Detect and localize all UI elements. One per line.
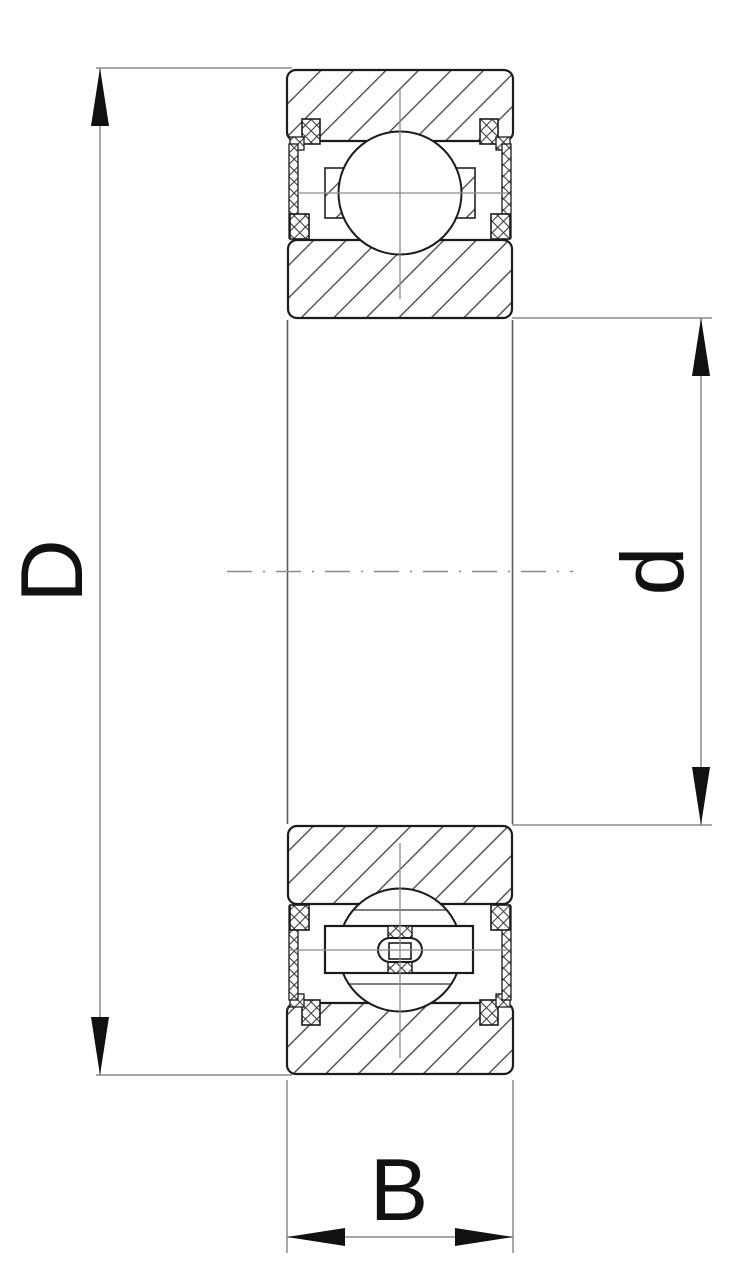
bore-diameter-label: d	[603, 547, 702, 596]
arrow-up-icon	[692, 318, 710, 376]
bearing-dimension-diagram: D d B	[0, 0, 743, 1280]
top-bearing-section	[287, 70, 513, 318]
width-label: B	[370, 1140, 429, 1239]
arrow-down-icon	[91, 1017, 109, 1075]
seal-right-top	[480, 119, 511, 239]
outer-diameter-label: D	[2, 539, 101, 603]
bottom-bearing-section	[287, 826, 513, 1074]
arrow-up-icon	[91, 68, 109, 126]
arrow-right-icon	[455, 1228, 513, 1246]
seal-left-bottom	[289, 905, 320, 1025]
dimension-width: B	[287, 1080, 513, 1253]
arrow-down-icon	[692, 767, 710, 825]
arrow-left-icon	[287, 1228, 345, 1246]
seal-left-top	[289, 119, 320, 239]
seal-right-bottom	[480, 905, 511, 1025]
